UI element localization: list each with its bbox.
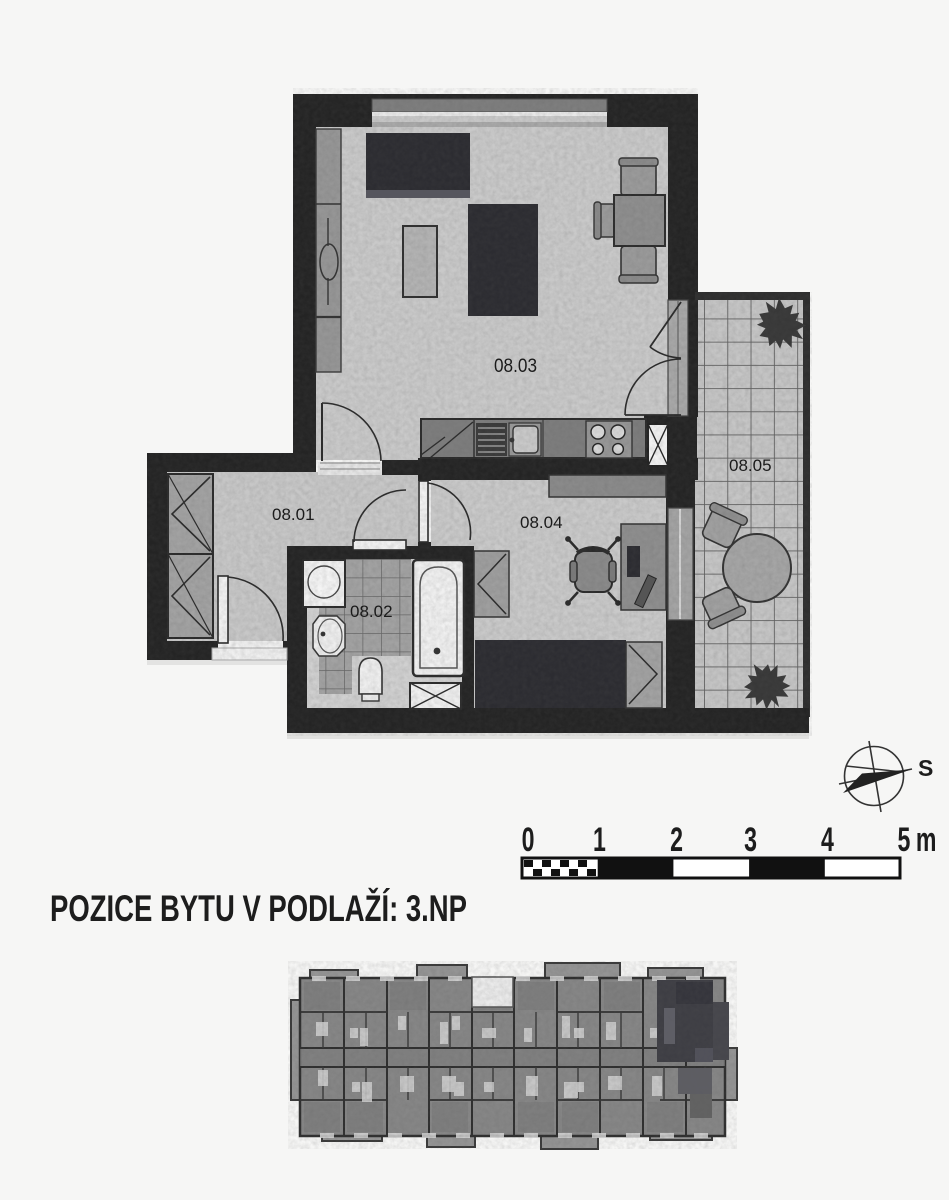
svg-text:m: m [916,822,937,859]
svg-text:POZICE BYTU V PODLAŽÍ: 3.NP: POZICE BYTU V PODLAŽÍ: 3.NP [50,887,467,929]
svg-text:S: S [918,755,933,781]
svg-text:4: 4 [821,822,834,859]
svg-text:2: 2 [670,822,683,859]
svg-text:1: 1 [593,822,606,859]
svg-text:5: 5 [898,822,911,859]
svg-text:0: 0 [522,822,535,859]
svg-text:3: 3 [744,822,757,859]
